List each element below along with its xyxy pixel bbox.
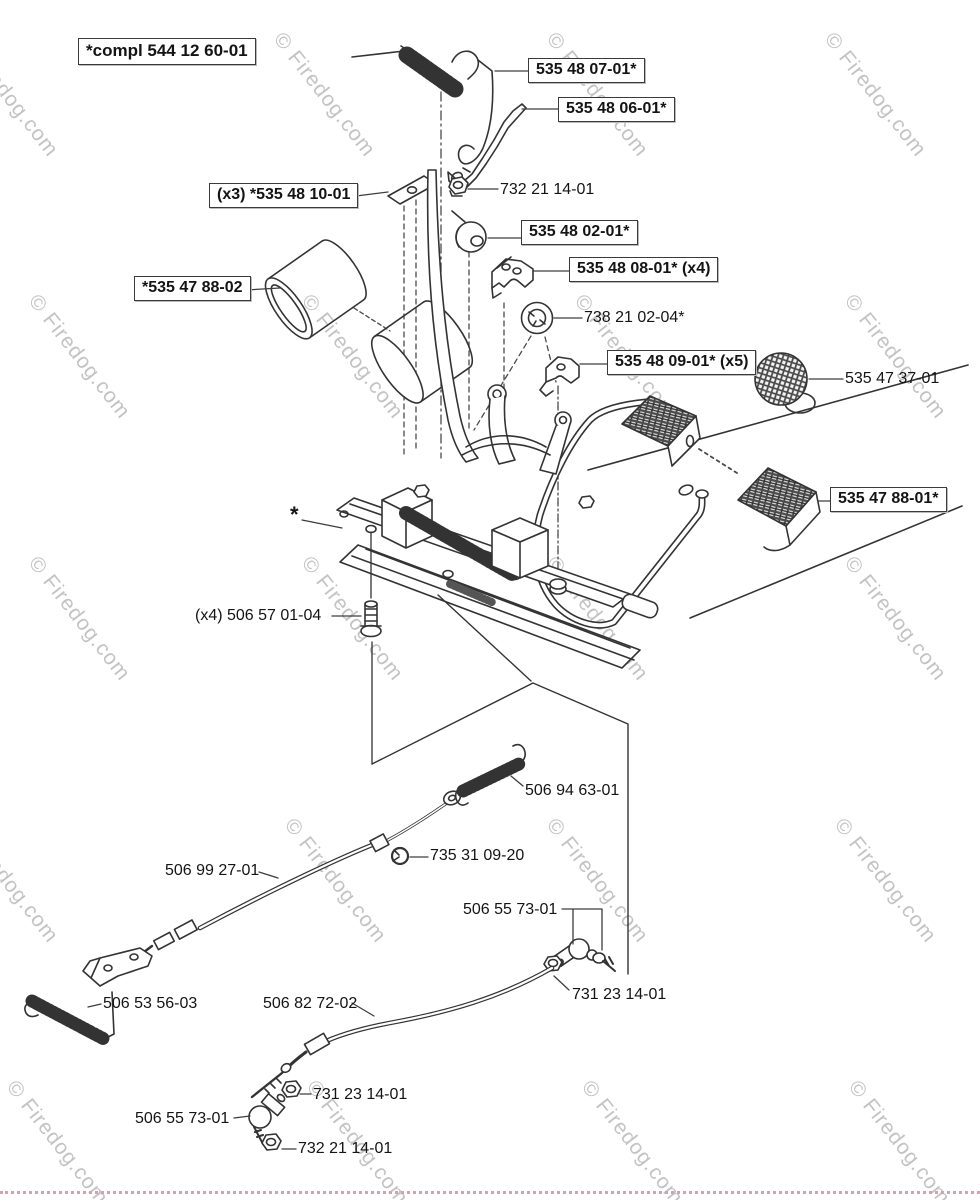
part-label-asterisk[interactable]: *	[290, 502, 299, 527]
part-label-p7353109[interactable]: 735 31 09-20	[430, 847, 524, 865]
clamp-x4	[492, 257, 533, 298]
part-label-p7312314l[interactable]: 731 23 14-01	[313, 1086, 407, 1104]
part-label-p5065573u[interactable]: 506 55 73-01	[463, 901, 557, 919]
part-label-p5069463[interactable]: 506 94 63-01	[525, 782, 619, 800]
part-label-p5068272[interactable]: 506 82 72-02	[263, 995, 357, 1013]
grommet	[452, 211, 486, 252]
part-label-p5354810[interactable]: (x3) *535 48 10-01	[209, 183, 358, 208]
parts-diagram-page: © Firedog.com© Firedog.com© Firedog.com©…	[0, 0, 980, 1200]
part-label-p5065356[interactable]: 506 53 56-03	[103, 995, 197, 1013]
part-label-p5354806[interactable]: 535 48 06-01*	[558, 97, 675, 122]
part-label-p5354788_01[interactable]: 535 47 88-01*	[830, 487, 947, 512]
part-label-p5069927[interactable]: 506 99 27-01	[165, 862, 259, 880]
cylinder-boot-1	[257, 234, 374, 346]
gear-knob	[755, 353, 815, 413]
part-label-p5354807[interactable]: 535 48 07-01*	[528, 58, 645, 83]
part-label-p5065573l[interactable]: 506 55 73-01	[135, 1110, 229, 1128]
exploded-view-drawing	[0, 0, 980, 1200]
part-label-p5354809[interactable]: 535 48 09-01* (x5)	[607, 350, 756, 375]
hook-lever	[448, 104, 526, 188]
part-label-p5354788_02[interactable]: *535 47 88-02	[134, 276, 251, 301]
part-label-p7322114top[interactable]: 732 21 14-01	[500, 181, 594, 199]
nut-top	[449, 177, 468, 196]
part-label-p5354808[interactable]: 535 48 08-01* (x4)	[569, 257, 718, 282]
part-label-p7382102[interactable]: 738 21 02-04*	[584, 309, 685, 327]
part-label-compl[interactable]: *compl 544 12 60-01	[78, 38, 256, 65]
clamp-x5	[540, 357, 579, 396]
ball-joint-upper	[544, 939, 615, 971]
part-label-p7312314u[interactable]: 731 23 14-01	[572, 986, 666, 1004]
pedal-pad-2	[738, 468, 820, 551]
part-label-p5065701[interactable]: (x4) 506 57 01-04	[195, 607, 321, 625]
bottom-dotted-border	[0, 1191, 980, 1194]
top-spring	[352, 46, 493, 164]
part-label-p7322114l[interactable]: 732 21 14-01	[298, 1140, 392, 1158]
cylinder-boot-2	[363, 294, 481, 410]
bearing-washer	[522, 303, 553, 334]
part-label-p5354737[interactable]: 535 47 37-01	[845, 370, 939, 388]
part-label-p5354802[interactable]: 535 48 02-01*	[521, 220, 638, 245]
